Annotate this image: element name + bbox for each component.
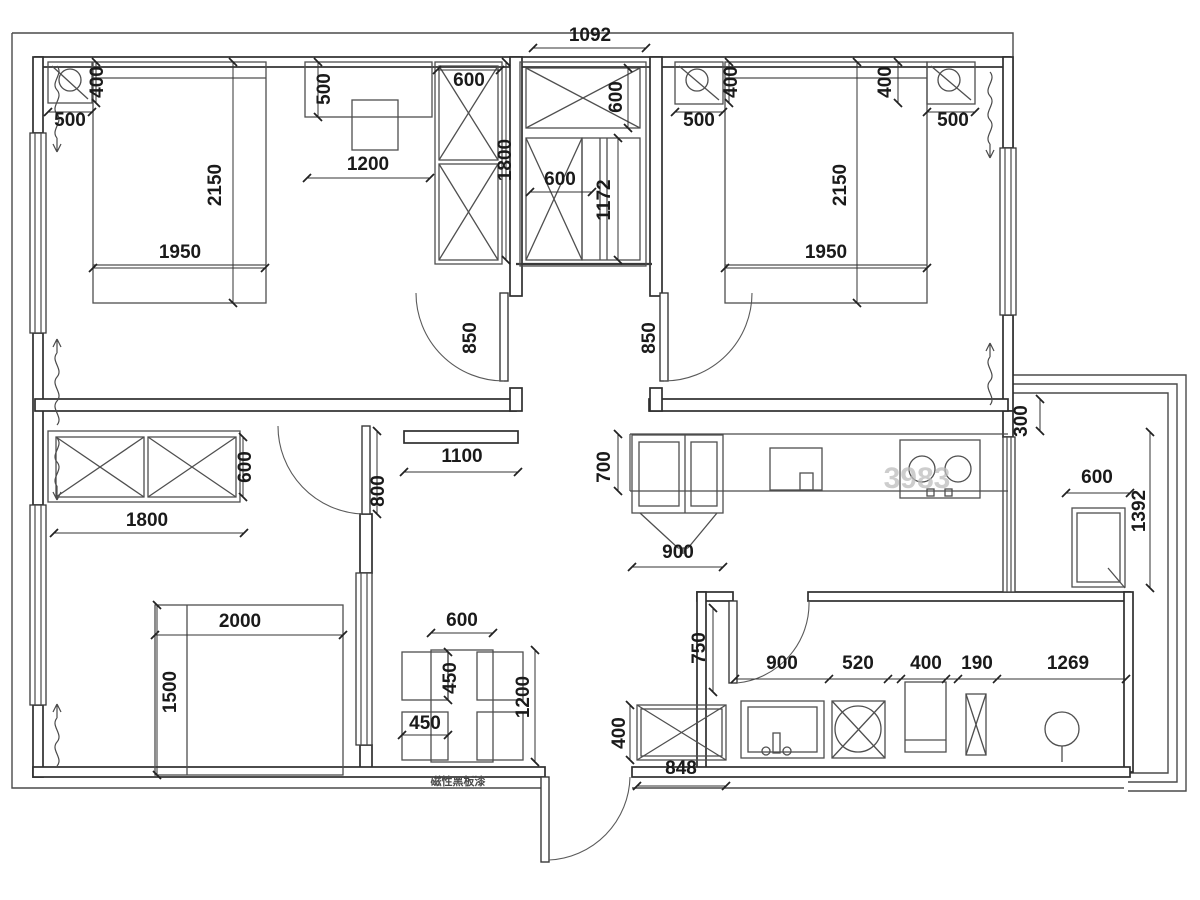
dim-label-1172: 1172: [594, 179, 615, 220]
dim-label-600: 600: [544, 169, 576, 190]
dim-label-700: 700: [594, 451, 615, 483]
dim-label-2150: 2150: [830, 164, 851, 206]
window-left-top: [30, 133, 46, 333]
wardrobe-bedroom2: [48, 431, 240, 502]
dim-label-1392: 1392: [1129, 490, 1150, 532]
hall-closet: [520, 62, 646, 266]
dim-label-500: 500: [683, 110, 715, 131]
dim-label-500: 500: [314, 73, 335, 105]
dim-label-600: 600: [235, 451, 256, 483]
dining-set: [402, 650, 523, 762]
door-bedroom2: [278, 426, 370, 514]
floor-plan-svg: 4005002150195050012006001800109260060011…: [0, 0, 1200, 900]
dim-label-1100: 1100: [441, 446, 482, 467]
dim-label-850: 850: [460, 322, 481, 354]
watermark: 3983: [884, 462, 951, 495]
dim-label-190: 190: [961, 653, 993, 674]
dim-label-900: 900: [662, 542, 694, 563]
bed-bedroom3: [725, 62, 927, 303]
floor-plan-canvas: 4005002150195050012006001800109260060011…: [0, 0, 1200, 900]
dim-label-2000: 2000: [219, 611, 261, 632]
washing-machine: [832, 701, 885, 758]
balcony-cabinet: [1072, 508, 1125, 588]
dim-label-900: 900: [766, 653, 798, 674]
dim-label-1092: 1092: [569, 25, 611, 46]
dim-label-848: 848: [665, 758, 697, 779]
dim-label-1500: 1500: [160, 671, 181, 713]
kitchen-wall-box: [770, 448, 822, 490]
dim-label-400: 400: [721, 66, 742, 98]
dim-label-800: 800: [368, 475, 389, 507]
bathroom-vanity: [741, 701, 824, 758]
dim-label-600: 600: [606, 81, 627, 113]
dim-label-1200: 1200: [513, 676, 534, 718]
dim-label-2150: 2150: [205, 164, 226, 206]
dim-label-750: 750: [689, 632, 710, 664]
dim-label-450: 450: [409, 713, 441, 734]
window-bedroom2-partition: [356, 573, 372, 745]
dim-label-400: 400: [609, 717, 630, 749]
dim-label-400: 400: [87, 66, 108, 98]
shoe-cabinet: [637, 705, 726, 760]
dim-label-600: 600: [453, 70, 485, 91]
wardrobe-bedroom1: [435, 62, 502, 264]
window-left-bottom: [30, 505, 46, 705]
dim-label-1200: 1200: [347, 154, 389, 175]
dim-label-500: 500: [937, 110, 969, 131]
dim-label-600: 600: [446, 610, 478, 631]
dim-label-300: 300: [1011, 405, 1032, 437]
dim-label-1800: 1800: [126, 510, 168, 531]
nightstand-right-bedroom3: [927, 62, 975, 104]
dim-label-400: 400: [875, 66, 896, 98]
dim-label-1800: 1800: [495, 139, 516, 181]
kitchen-sink: [632, 435, 723, 554]
window-right-bedroom: [1000, 148, 1016, 315]
wall-note: 磁性黑板漆: [431, 774, 486, 788]
door-entry: [541, 777, 630, 862]
toilet: [905, 682, 946, 752]
dim-label-850: 850: [639, 322, 660, 354]
bath-cabinet: [966, 694, 986, 755]
dimension-lines: [48, 48, 1150, 786]
balcony-walls: [1013, 375, 1186, 791]
nightstand-bedroom1: [48, 62, 92, 103]
dim-label-1950: 1950: [805, 242, 847, 263]
dim-label-400: 400: [910, 653, 942, 674]
balcony-sliding-door: [1003, 437, 1015, 592]
nightstand-left-bedroom3: [675, 62, 723, 104]
dim-label-1269: 1269: [1047, 653, 1089, 674]
dim-label-500: 500: [54, 110, 86, 131]
dim-label-520: 520: [842, 653, 874, 674]
bed-bedroom1: [93, 62, 266, 303]
dim-label-1950: 1950: [159, 242, 201, 263]
door-bedroom3: [660, 293, 752, 381]
dim-label-600: 600: [1081, 467, 1113, 488]
floor-plant: [1045, 712, 1079, 762]
kitchen-counter: [630, 434, 1008, 491]
dim-label-450: 450: [440, 662, 461, 694]
